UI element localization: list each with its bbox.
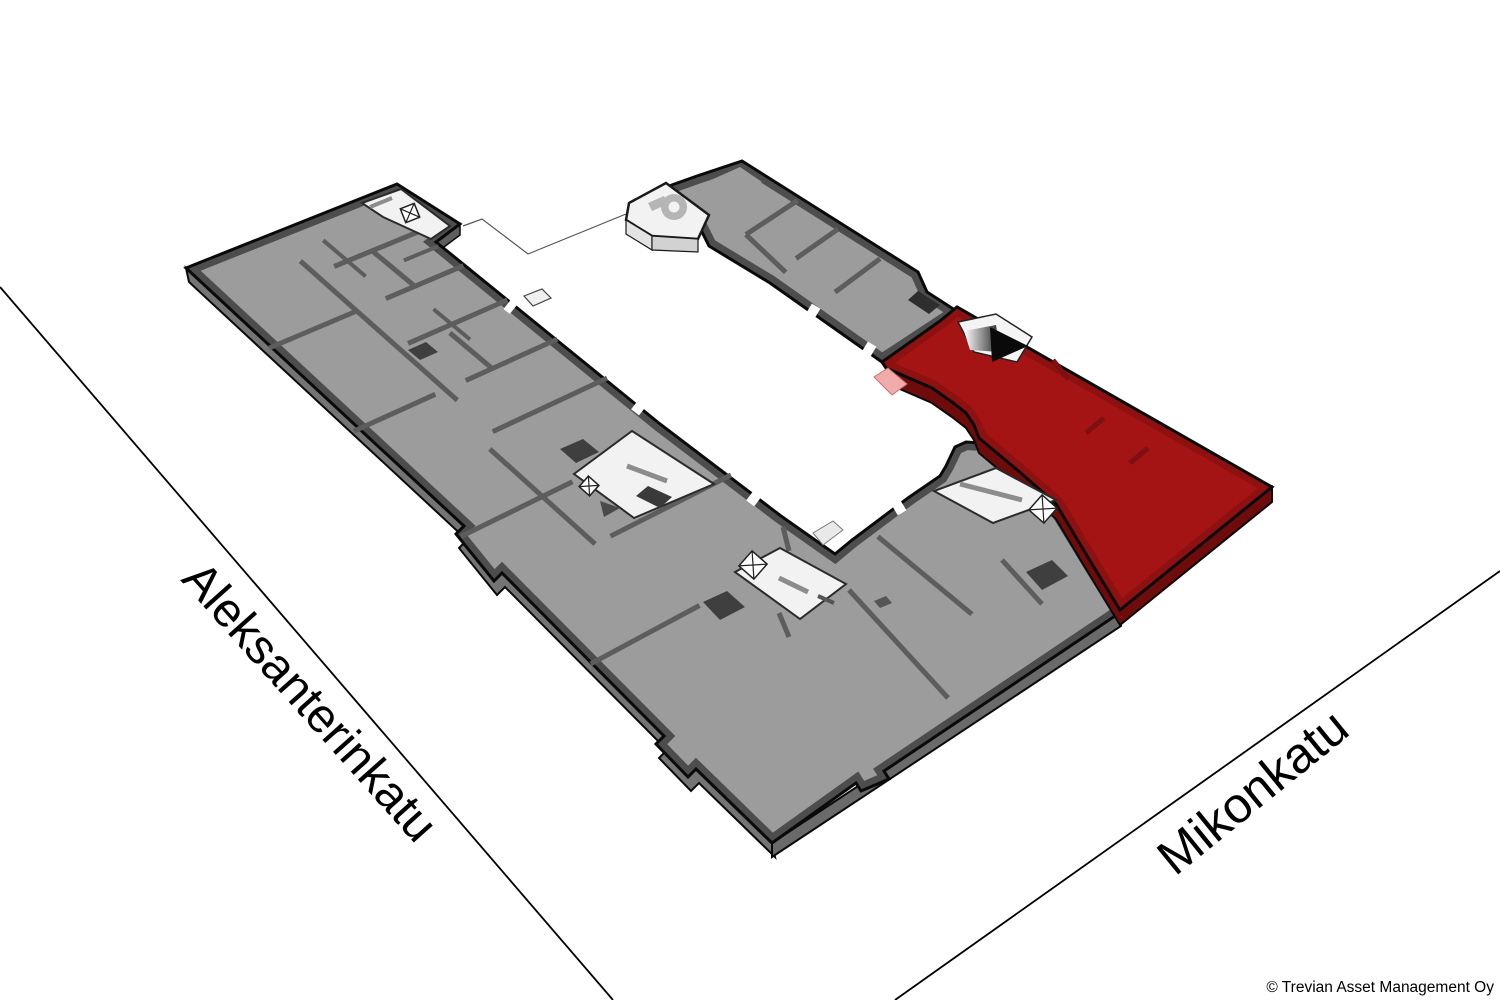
svg-text:© Trevian Asset Management Oy: © Trevian Asset Management Oy	[1266, 979, 1494, 996]
